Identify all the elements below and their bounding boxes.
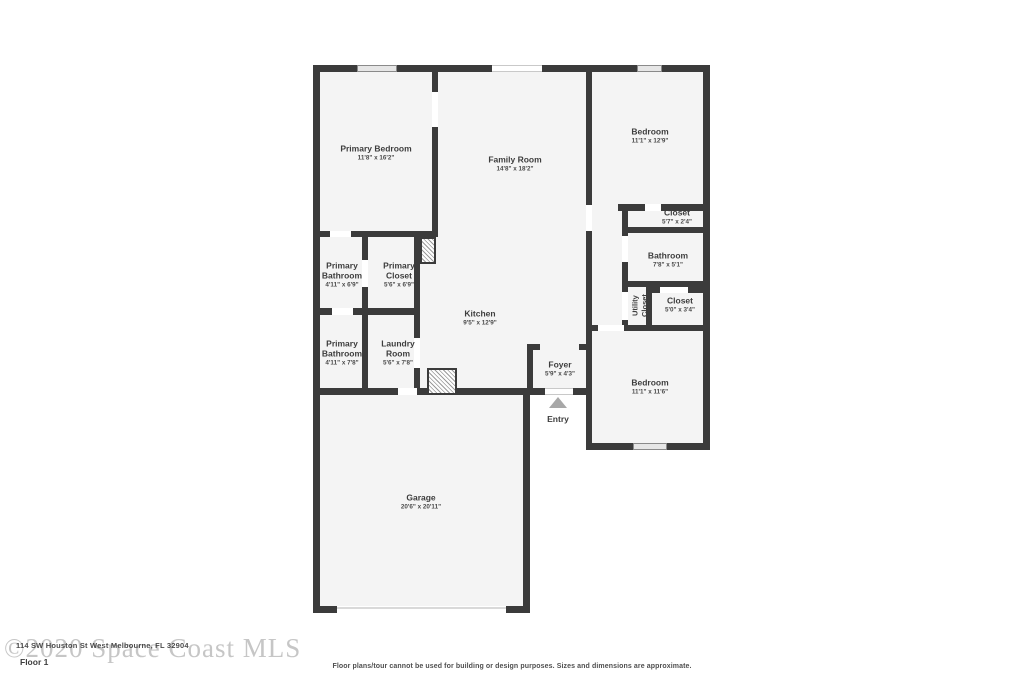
floor-plan: Primary Bedroom 11'8" x 16'2" Family Roo… bbox=[0, 0, 1024, 683]
room-label-laundry-room: Laundry Room 5'6" x 7'8" bbox=[373, 339, 423, 368]
room-name: Family Room bbox=[488, 155, 541, 165]
room-name: Closet bbox=[665, 296, 695, 306]
room-dims: 7'8" x 5'1" bbox=[648, 262, 688, 270]
slider-opening-family-room bbox=[492, 65, 542, 72]
wall-garage-right bbox=[523, 395, 530, 613]
room-name: Primary Closet bbox=[374, 261, 424, 281]
wall-foyer-left bbox=[527, 344, 533, 395]
door-opening-closet1 bbox=[645, 204, 661, 211]
wall-bath-mid bbox=[313, 308, 420, 315]
door-opening-primary-bath1 bbox=[330, 231, 351, 237]
wall-family-right bbox=[586, 65, 592, 450]
door-opening-bathroom bbox=[622, 236, 628, 262]
room-name: Garage bbox=[401, 493, 441, 503]
room-name: Kitchen bbox=[463, 309, 496, 319]
room-name: Bedroom bbox=[631, 127, 668, 137]
door-opening-hallway bbox=[586, 205, 592, 231]
room-label-bedroom2: Bedroom 11'1" x 11'6" bbox=[631, 378, 668, 397]
door-opening-entry bbox=[545, 388, 573, 395]
room-label-closet1: Closet 5'7" x 2'4" bbox=[662, 208, 692, 227]
property-address: 114 SW Houston St West Melbourne, FL 329… bbox=[16, 641, 189, 650]
room-dims: 5'6" x 6'9" bbox=[374, 282, 424, 290]
room-dims: 5'7" x 2'4" bbox=[662, 219, 692, 227]
room-name: Foyer bbox=[545, 360, 575, 370]
window-bedroom1 bbox=[637, 65, 662, 72]
room-name: Bedroom bbox=[631, 378, 668, 388]
window-primary-bedroom bbox=[357, 65, 397, 72]
room-dims: 4'11" x 7'8" bbox=[317, 360, 367, 368]
room-name: Bathroom bbox=[648, 251, 688, 261]
disclaimer-text: Floor plans/tour cannot be used for buil… bbox=[0, 663, 1024, 670]
room-label-primary-bedroom: Primary Bedroom 11'8" x 16'2" bbox=[340, 144, 411, 163]
room-dims: 9'5" x 12'9" bbox=[463, 320, 496, 328]
door-opening-closet2 bbox=[660, 287, 688, 293]
room-name: Primary Bedroom bbox=[340, 144, 411, 154]
room-dims: 5'9" x 4'3" bbox=[545, 371, 575, 379]
door-opening-bedroom2 bbox=[598, 325, 624, 331]
wall-bathroom-top bbox=[628, 227, 710, 233]
door-opening-laundry-garage bbox=[398, 388, 417, 395]
room-name: Primary Bathroom bbox=[317, 261, 367, 281]
wall-foyer-top-stub-left bbox=[527, 344, 540, 350]
room-name: Primary Bathroom bbox=[317, 339, 367, 359]
window-bedroom2 bbox=[633, 443, 667, 450]
hatched-utility-box-lower bbox=[427, 368, 457, 395]
room-label-primary-closet: Primary Closet 5'6" x 6'9" bbox=[374, 261, 424, 290]
wall-foyer-top-stub-right bbox=[579, 344, 592, 350]
room-label-kitchen: Kitchen 9'5" x 12'9" bbox=[463, 309, 496, 328]
entry-label: Entry bbox=[547, 414, 569, 424]
wall-primary-bedroom-right bbox=[432, 65, 438, 237]
room-label-garage: Garage 20'6" x 20'11" bbox=[401, 493, 441, 512]
room-label-closet2: Closet 5'0" x 3'4" bbox=[665, 296, 695, 315]
room-label-bedroom1: Bedroom 11'1" x 12'9" bbox=[631, 127, 668, 146]
door-opening-utility-closet bbox=[622, 292, 628, 320]
door-opening-primary-bath2 bbox=[332, 308, 353, 315]
room-label-family-room: Family Room 14'8" x 18'2" bbox=[488, 155, 541, 174]
garage-door-line bbox=[337, 607, 506, 609]
room-dims: 20'6" x 20'11" bbox=[401, 504, 441, 512]
room-dims: 11'8" x 16'2" bbox=[340, 155, 411, 163]
door-opening-primary-bedroom bbox=[432, 92, 438, 127]
room-dims: 4'11" x 6'9" bbox=[317, 282, 367, 290]
room-label-primary-bathroom1: Primary Bathroom 4'11" x 6'9" bbox=[317, 261, 367, 290]
room-label-utility-closet: Utility Closet bbox=[630, 285, 650, 327]
wall-exterior-right bbox=[703, 65, 710, 450]
room-dims: 14'8" x 18'2" bbox=[488, 166, 541, 174]
room-name: Utility Closet bbox=[630, 285, 650, 327]
room-dims: 11'1" x 11'6" bbox=[631, 389, 668, 397]
room-name: Laundry Room bbox=[373, 339, 423, 359]
room-label-bathroom: Bathroom 7'8" x 5'1" bbox=[648, 251, 688, 270]
room-dims: 5'6" x 7'8" bbox=[373, 360, 423, 368]
room-label-primary-bathroom2: Primary Bathroom 4'11" x 7'8" bbox=[317, 339, 367, 368]
room-name: Closet bbox=[662, 208, 692, 218]
entry-arrow-icon bbox=[549, 397, 567, 408]
room-dims: 5'0" x 3'4" bbox=[665, 307, 695, 315]
room-dims: 11'1" x 12'9" bbox=[631, 138, 668, 146]
room-label-foyer: Foyer 5'9" x 4'3" bbox=[545, 360, 575, 379]
